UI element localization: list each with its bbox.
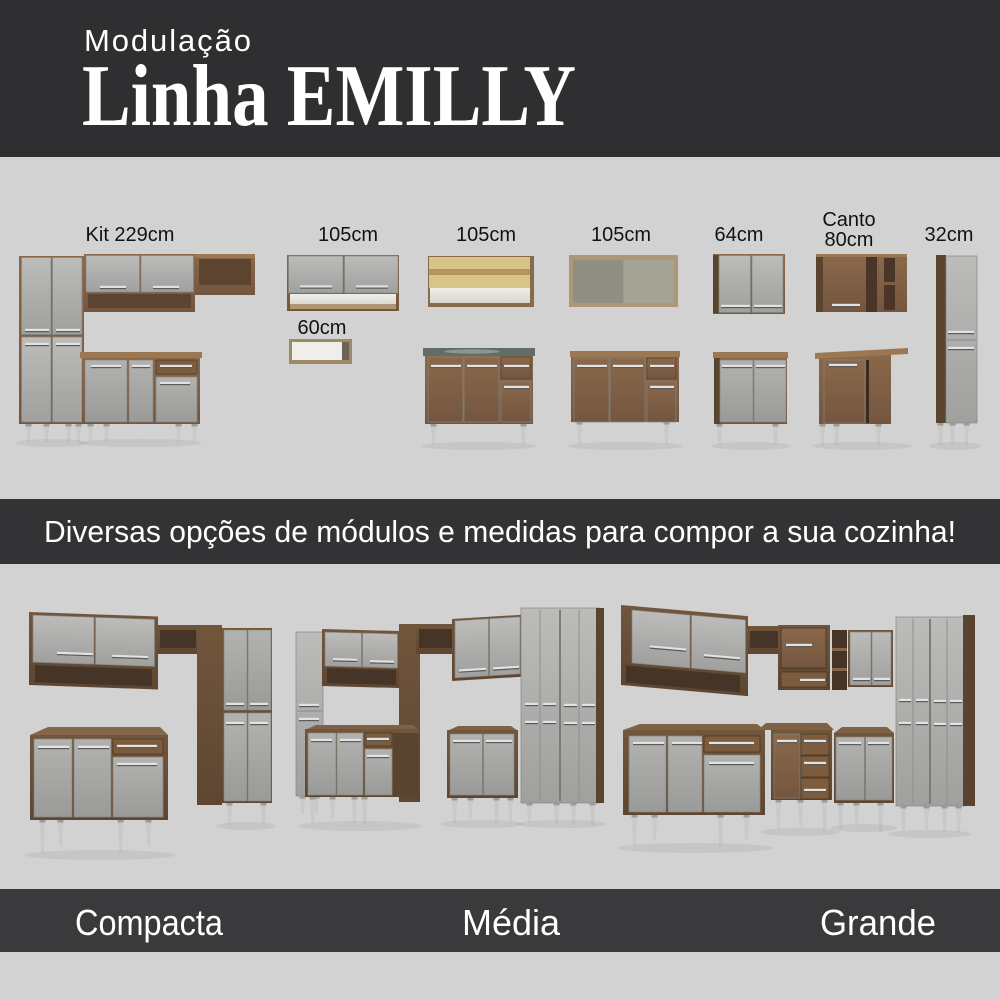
svg-text:32cm: 32cm: [925, 224, 974, 246]
svg-text:80cm: 80cm: [825, 229, 874, 251]
svg-text:105cm: 105cm: [318, 224, 378, 246]
svg-text:Linha EMILLY: Linha EMILLY: [82, 48, 576, 145]
svg-text:Kit 229cm: Kit 229cm: [86, 224, 175, 246]
svg-text:105cm: 105cm: [456, 224, 516, 246]
svg-text:64cm: 64cm: [715, 224, 764, 246]
svg-text:Diversas opções de módulos e m: Diversas opções de módulos e medidas par…: [44, 514, 956, 549]
svg-text:60cm: 60cm: [298, 317, 347, 339]
svg-text:Grande: Grande: [820, 902, 936, 943]
svg-text:Compacta: Compacta: [75, 902, 224, 943]
svg-text:Média: Média: [462, 902, 561, 943]
svg-text:105cm: 105cm: [591, 224, 651, 246]
svg-text:Canto: Canto: [822, 209, 875, 231]
